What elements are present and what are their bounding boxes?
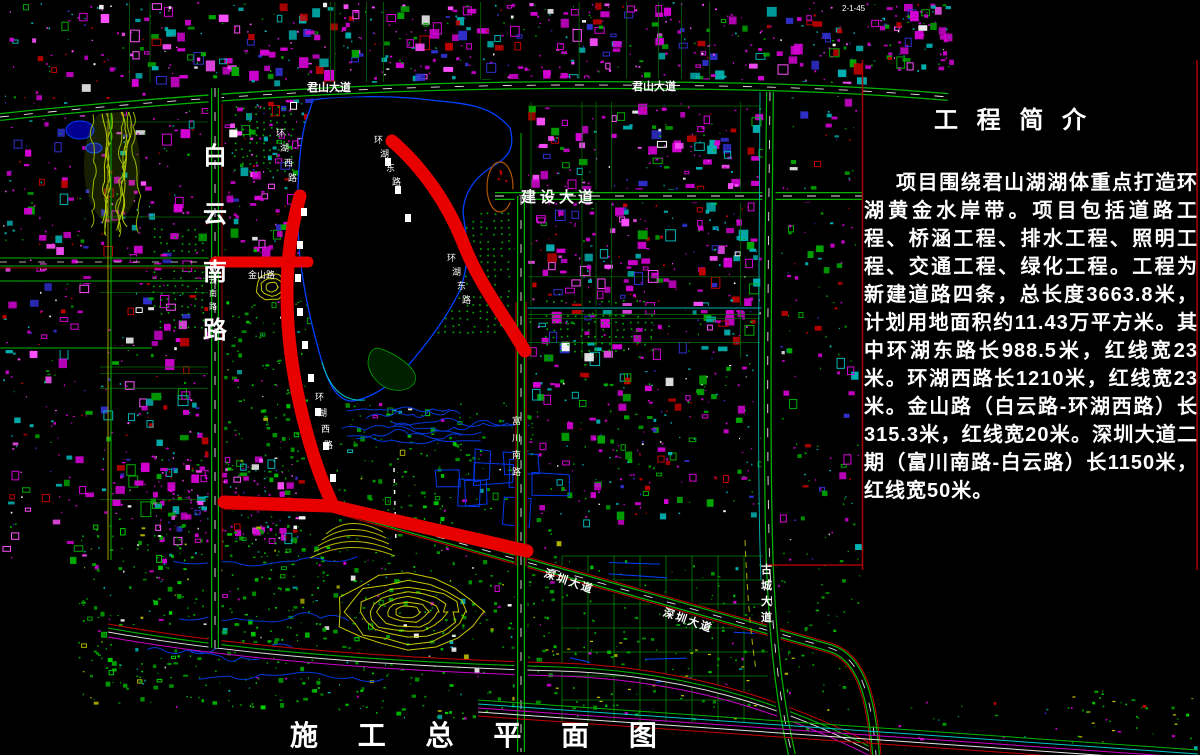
svg-text:南: 南 bbox=[209, 288, 217, 298]
svg-text:白: 白 bbox=[203, 142, 227, 170]
svg-text:道: 道 bbox=[761, 610, 772, 624]
panel-title: 工 程 简 介 bbox=[934, 100, 1198, 135]
svg-text:环: 环 bbox=[315, 392, 324, 402]
svg-text:环: 环 bbox=[447, 253, 456, 263]
svg-text:东: 东 bbox=[386, 162, 395, 173]
svg-text:古: 古 bbox=[761, 562, 772, 576]
panel-body: 项目围绕君山湖湖体重点打造环湖黄金水岸带。项目包括道路工程、桥涵工程、排水工程、… bbox=[864, 169, 1198, 505]
svg-text:湖: 湖 bbox=[318, 408, 327, 418]
svg-text:湖: 湖 bbox=[280, 143, 289, 153]
svg-text:环: 环 bbox=[276, 128, 285, 138]
svg-text:路: 路 bbox=[392, 176, 401, 187]
svg-text:南: 南 bbox=[512, 449, 521, 460]
svg-text:2-1-45: 2-1-45 bbox=[842, 4, 866, 13]
drawing-title: 施 工 总 平 面 图 bbox=[290, 714, 673, 754]
svg-text:路: 路 bbox=[324, 439, 333, 450]
project-brief-panel: 工 程 简 介 项目围绕君山湖湖体重点打造环湖黄金水岸带。项目包括道路工程、桥涵… bbox=[864, 100, 1198, 505]
svg-text:城: 城 bbox=[761, 578, 772, 592]
svg-text:路: 路 bbox=[203, 316, 228, 344]
svg-text:湖: 湖 bbox=[380, 149, 389, 159]
svg-text:川: 川 bbox=[512, 433, 521, 443]
svg-text:云: 云 bbox=[209, 276, 217, 285]
cad-viewport: 白云南路白云南路君山大道君山大道建设大道环湖西路环湖西路环湖东路环湖东路富川南路… bbox=[0, 0, 1200, 755]
svg-text:建设大道: 建设大道 bbox=[521, 188, 597, 206]
svg-text:西: 西 bbox=[284, 158, 293, 168]
svg-text:大: 大 bbox=[761, 594, 772, 608]
svg-text:白: 白 bbox=[209, 262, 217, 272]
svg-text:君山大道: 君山大道 bbox=[307, 80, 351, 94]
svg-text:路: 路 bbox=[512, 466, 521, 477]
svg-text:金山路: 金山路 bbox=[248, 269, 275, 280]
svg-text:君山大道: 君山大道 bbox=[632, 79, 676, 93]
svg-text:湖: 湖 bbox=[452, 267, 461, 277]
svg-text:西: 西 bbox=[321, 424, 330, 434]
svg-text:路: 路 bbox=[462, 294, 471, 305]
svg-text:环: 环 bbox=[374, 135, 383, 145]
svg-text:路: 路 bbox=[209, 301, 217, 311]
svg-text:路: 路 bbox=[288, 172, 297, 183]
svg-text:富: 富 bbox=[512, 415, 521, 426]
svg-text:云: 云 bbox=[203, 201, 227, 228]
svg-text:东: 东 bbox=[457, 280, 466, 291]
